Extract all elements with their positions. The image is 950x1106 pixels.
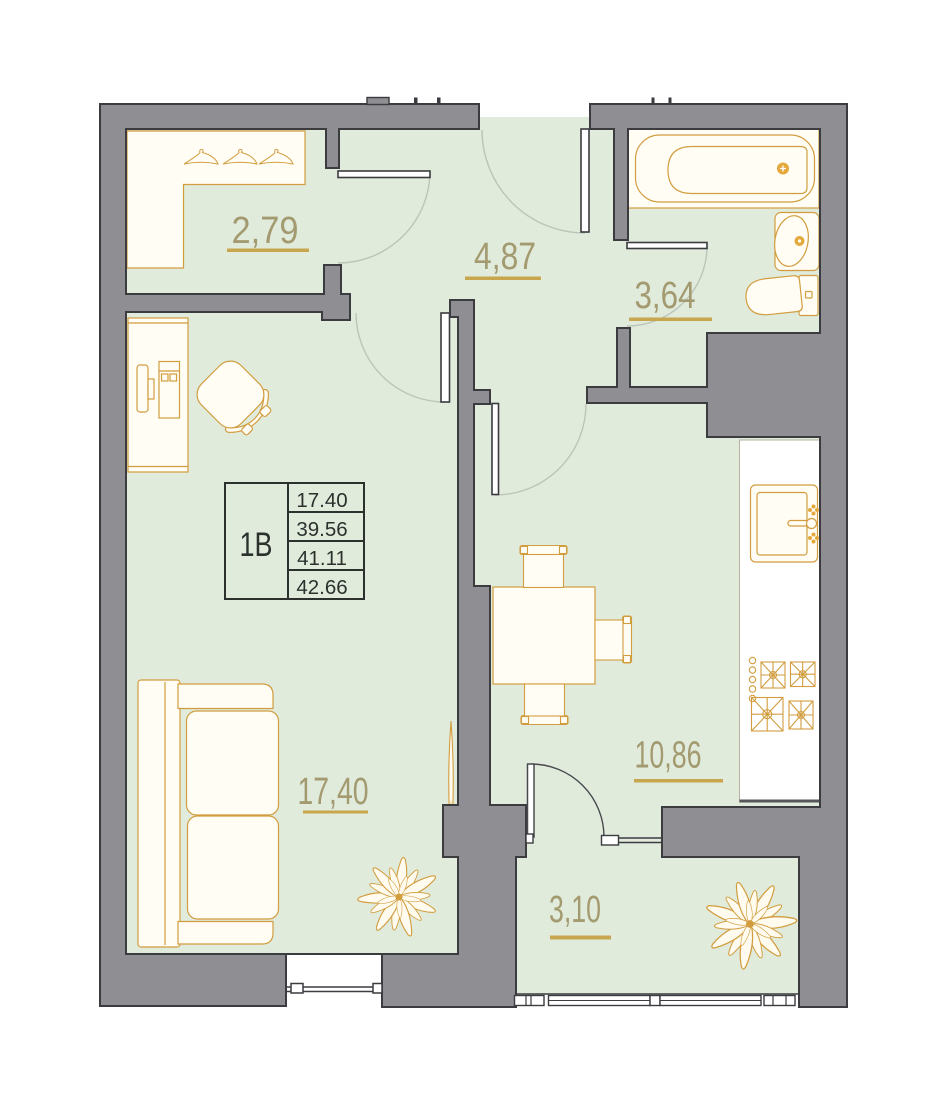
svg-text:17,40: 17,40: [298, 771, 369, 813]
svg-text:4,87: 4,87: [474, 236, 536, 278]
svg-text:17.40: 17.40: [296, 489, 347, 512]
svg-text:1B: 1B: [240, 526, 273, 564]
svg-text:3,10: 3,10: [549, 889, 601, 931]
svg-text:39.56: 39.56: [296, 518, 347, 541]
svg-text:2,79: 2,79: [232, 210, 299, 252]
svg-text:3,64: 3,64: [635, 275, 696, 317]
svg-text:42.66: 42.66: [296, 576, 347, 599]
svg-text:10,86: 10,86: [635, 735, 702, 777]
svg-text:41.11: 41.11: [297, 547, 347, 570]
